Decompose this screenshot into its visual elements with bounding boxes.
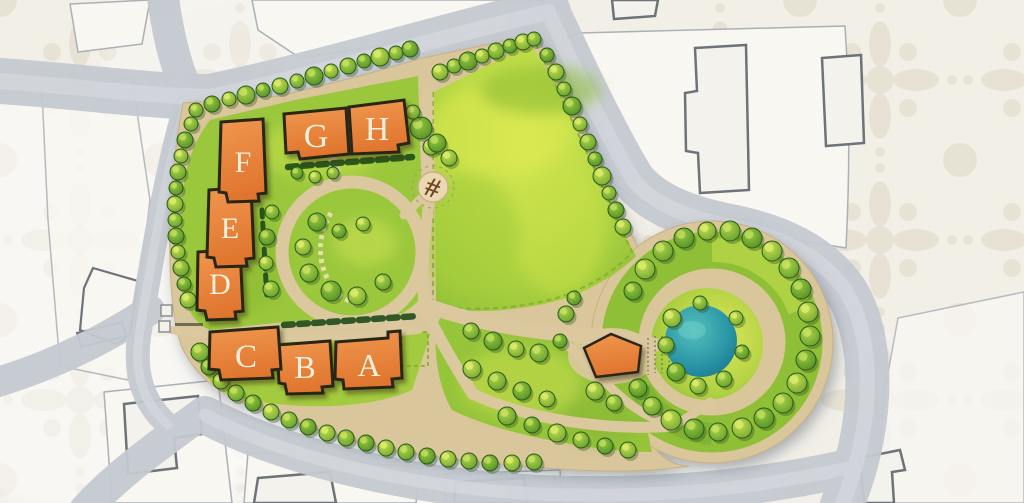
building-f[interactable]: F (219, 119, 266, 202)
parcel-top-left (70, 0, 150, 52)
notation-marks (175, 323, 203, 326)
footprint (822, 55, 864, 146)
building-label-e: E (221, 212, 239, 245)
building-label-c: C (235, 339, 257, 375)
building-c[interactable]: C (209, 327, 281, 380)
gate-post (161, 305, 172, 316)
walk-center (423, 204, 429, 306)
building-label-a: A (357, 347, 380, 383)
building-g[interactable]: G (284, 108, 349, 159)
building-label-d: D (209, 268, 231, 301)
building-b[interactable]: B (277, 341, 333, 394)
building-h[interactable]: H (349, 100, 409, 154)
gate-post (159, 321, 170, 332)
building-label-h: H (365, 111, 390, 148)
building-label-g: G (304, 118, 329, 155)
site-plan-canvas: # A B C D (0, 0, 1024, 503)
building-label-b: B (294, 349, 315, 385)
footprint (612, 0, 658, 19)
site-plan: # A B C D (0, 0, 1024, 503)
building-label-f: F (235, 146, 252, 179)
